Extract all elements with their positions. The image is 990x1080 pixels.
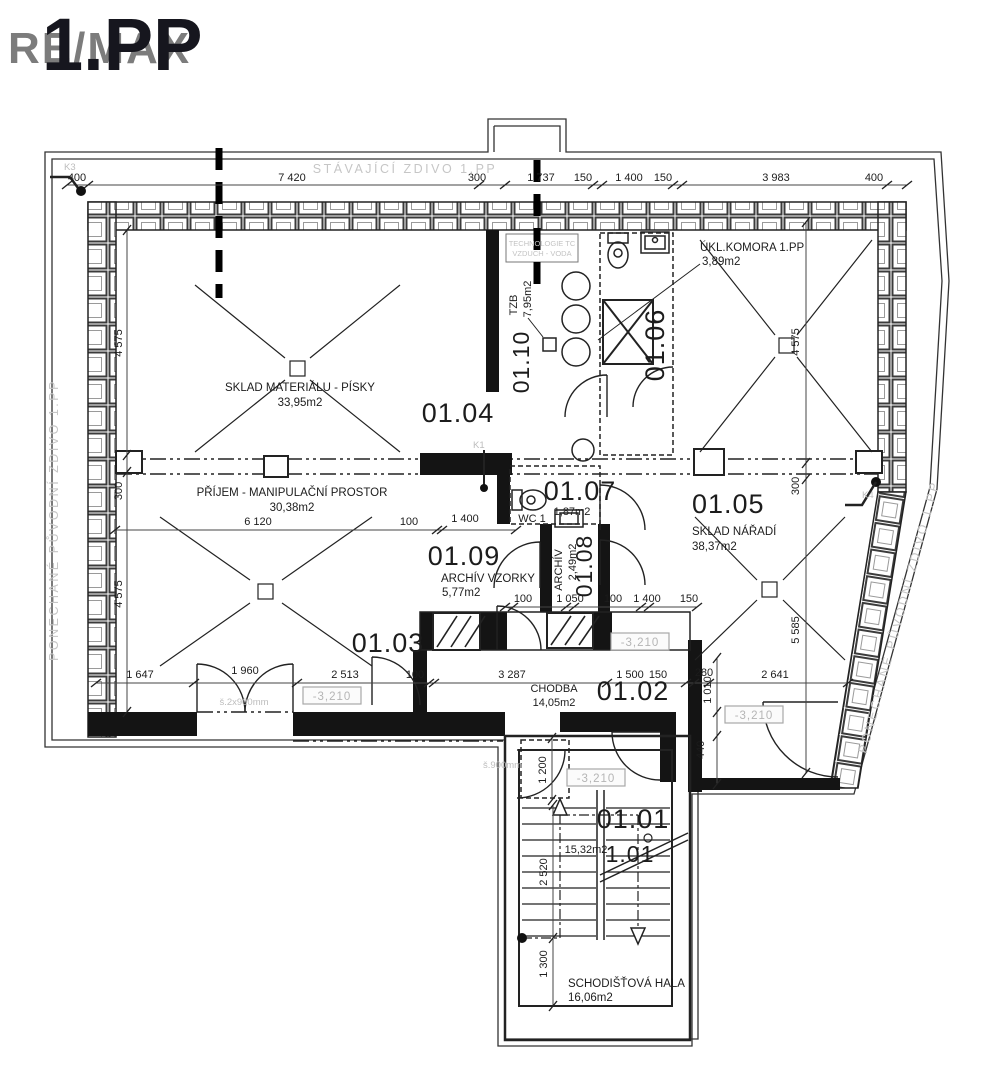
dim-label: 1 050	[556, 593, 584, 605]
vent-hatch-1	[433, 613, 480, 650]
dim-label: 1 500	[616, 669, 644, 681]
door-0103	[372, 657, 420, 705]
dim-label: 1 737	[527, 172, 555, 184]
room-name-0104: SKLAD MATERIÁLU - PÍSKY	[225, 381, 375, 394]
room-name-0105: SKLAD NÁŘADÍ	[692, 525, 777, 538]
dim-label: 4 575	[113, 580, 125, 608]
room-area-0105: 38,37m2	[692, 541, 737, 553]
k1-label: K1	[473, 440, 485, 451]
tech-box-line1: TECHNOLOGIE TC	[509, 239, 576, 248]
room-area-0106: 3,89m2	[702, 256, 740, 268]
room-number-0104: 01.04	[422, 398, 495, 428]
tank-1	[562, 272, 590, 300]
dim-label: 150	[654, 172, 672, 184]
room-number-0101: 01.01	[597, 804, 670, 834]
dim-label: 3 287	[498, 669, 526, 681]
k4-label: K4	[862, 490, 874, 501]
room-area-0107: 1,87m2	[554, 506, 591, 518]
dim-label: 400	[865, 172, 883, 184]
dim-label: 1 200	[537, 756, 549, 784]
room-number-0106: 01.06	[640, 309, 670, 382]
dim-label: 1 400	[451, 513, 479, 525]
dim-label: 2 641	[761, 669, 789, 681]
stair-number: 1.01	[606, 841, 655, 867]
dim-label: 100	[514, 593, 532, 605]
dim-label: 1 647	[126, 669, 154, 681]
dim-label: 1 400	[615, 172, 643, 184]
boiler	[572, 439, 594, 461]
dim-label: 300	[113, 482, 125, 500]
dim-label: 100	[406, 669, 424, 681]
level-mark: -3,210	[577, 773, 616, 785]
dim-label: 100	[400, 516, 418, 528]
room-name-0109: ARCHÍV VZORKY	[441, 572, 535, 585]
toilet-bowl	[608, 242, 628, 268]
dim-label: 440	[695, 741, 707, 759]
door-width-double: š.2x900mm	[219, 697, 268, 708]
dim-label: 6 120	[244, 516, 272, 528]
dim-label: 1 400	[633, 593, 661, 605]
room-number-0110: 01.10	[508, 331, 534, 394]
dim-label: 7 420	[278, 172, 306, 184]
dim-label: 150	[680, 593, 698, 605]
room-number-0105: 01.05	[692, 489, 765, 519]
room-name-0102: CHODBA	[530, 683, 578, 695]
room-name-0101: SCHODIŠŤOVÁ HALA	[568, 977, 685, 990]
room-name-0103: PŘÍJEM - MANIPULAČNÍ PROSTOR	[197, 486, 388, 499]
room-area-0109: 5,77m2	[442, 587, 480, 599]
dim-label: 300	[790, 477, 802, 495]
dim-label: 150	[649, 669, 667, 681]
room-area-0110: 7,95m2	[522, 281, 534, 318]
room-number-0109: 01.09	[428, 541, 501, 571]
dim-label: 1 300	[538, 950, 550, 978]
tank-2	[562, 305, 590, 333]
dim-label: 150	[574, 172, 592, 184]
room-area-0104: 33,95m2	[278, 397, 323, 409]
dim-label: 4 575	[113, 329, 125, 357]
dim-label: 3 983	[762, 172, 790, 184]
room-name-0108: ARCHÍV	[552, 549, 565, 591]
dim-label: 2 520	[538, 858, 550, 886]
dim-label: 100	[604, 593, 622, 605]
tank-3	[562, 338, 590, 366]
dim-label: 1 960	[231, 665, 259, 677]
floor-plan-drawing: STÁVAJÍCÍ ZDIVO 1.PP PONECHANÉ PŮVODNÍ Z…	[0, 0, 990, 1080]
room-area-0108: 2,49m2	[567, 544, 579, 581]
dim-label: 2 513	[331, 669, 359, 681]
stair-area: 15,32m2	[565, 844, 608, 856]
room-area-0103: 30,38m2	[270, 502, 315, 514]
room-area-0102: 14,05m2	[533, 697, 576, 709]
room-number-0107: 01.07	[544, 476, 617, 506]
room-name-0110: TZB	[508, 295, 520, 316]
room-name-0107: WC 1	[518, 513, 546, 525]
dim-label: 4 575	[790, 328, 802, 356]
dim-label: 400	[68, 172, 86, 184]
dim-label: 5 585	[790, 616, 802, 644]
level-mark: -3,210	[313, 691, 352, 703]
dim-label: 300	[468, 172, 486, 184]
wc1-bowl	[520, 490, 546, 510]
room-number-0103: 01.03	[352, 628, 425, 658]
note-kept-wall-left: PONECHANÉ PŮVODNÍ ZDIVO 1.PP	[46, 379, 61, 661]
door-width-single: š.900mm	[483, 760, 522, 771]
floor-plan-sheet: RE/MAX 1.PP	[0, 0, 990, 1080]
level-mark: -3,210	[621, 637, 660, 649]
tech-box-line2: VZDUCH - VODA	[512, 249, 571, 258]
level-mark: -3,210	[735, 710, 774, 722]
room-area-0101: 16,06m2	[568, 992, 613, 1004]
room-name-0106: ÚKL.KOMORA 1.PP	[700, 241, 805, 254]
dim-label: 1 010	[702, 676, 714, 704]
